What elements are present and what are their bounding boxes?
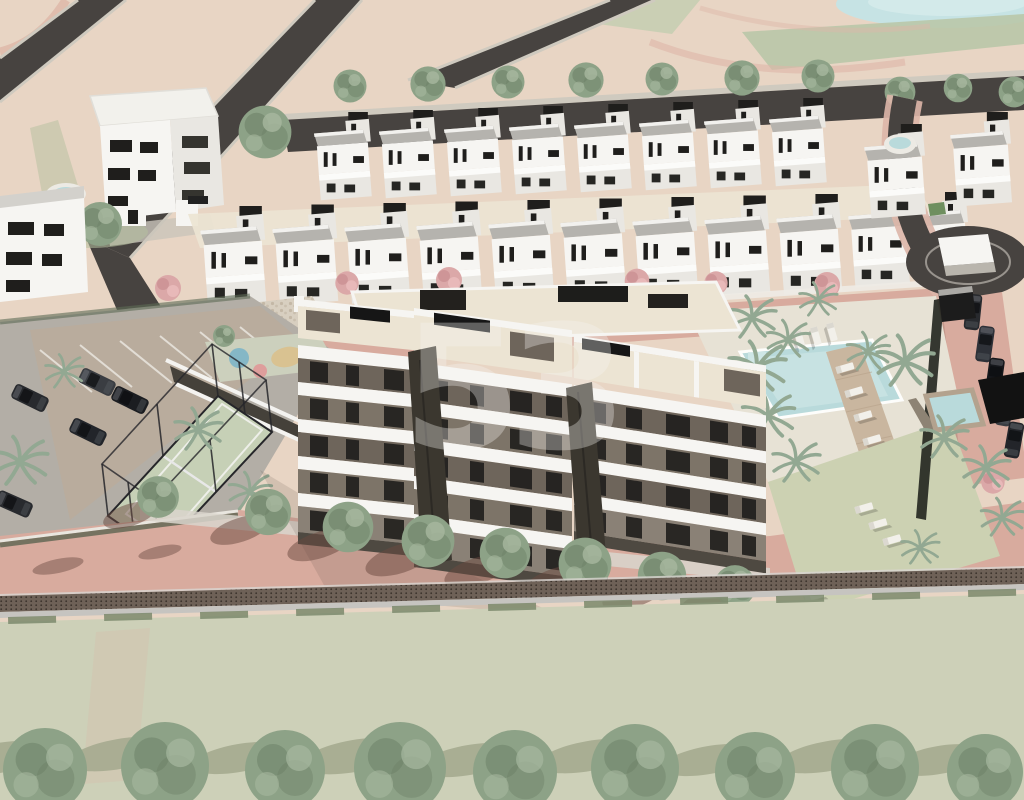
aerial-render: 53 bbox=[0, 0, 1024, 800]
render-canvas: 53 bbox=[0, 0, 1024, 800]
bottom-tree-row bbox=[0, 722, 1023, 800]
left-edge-building bbox=[0, 186, 88, 302]
villa-pool-right bbox=[889, 137, 911, 149]
watermark-logo: 53 bbox=[402, 288, 614, 489]
utility-cabin bbox=[938, 234, 994, 266]
